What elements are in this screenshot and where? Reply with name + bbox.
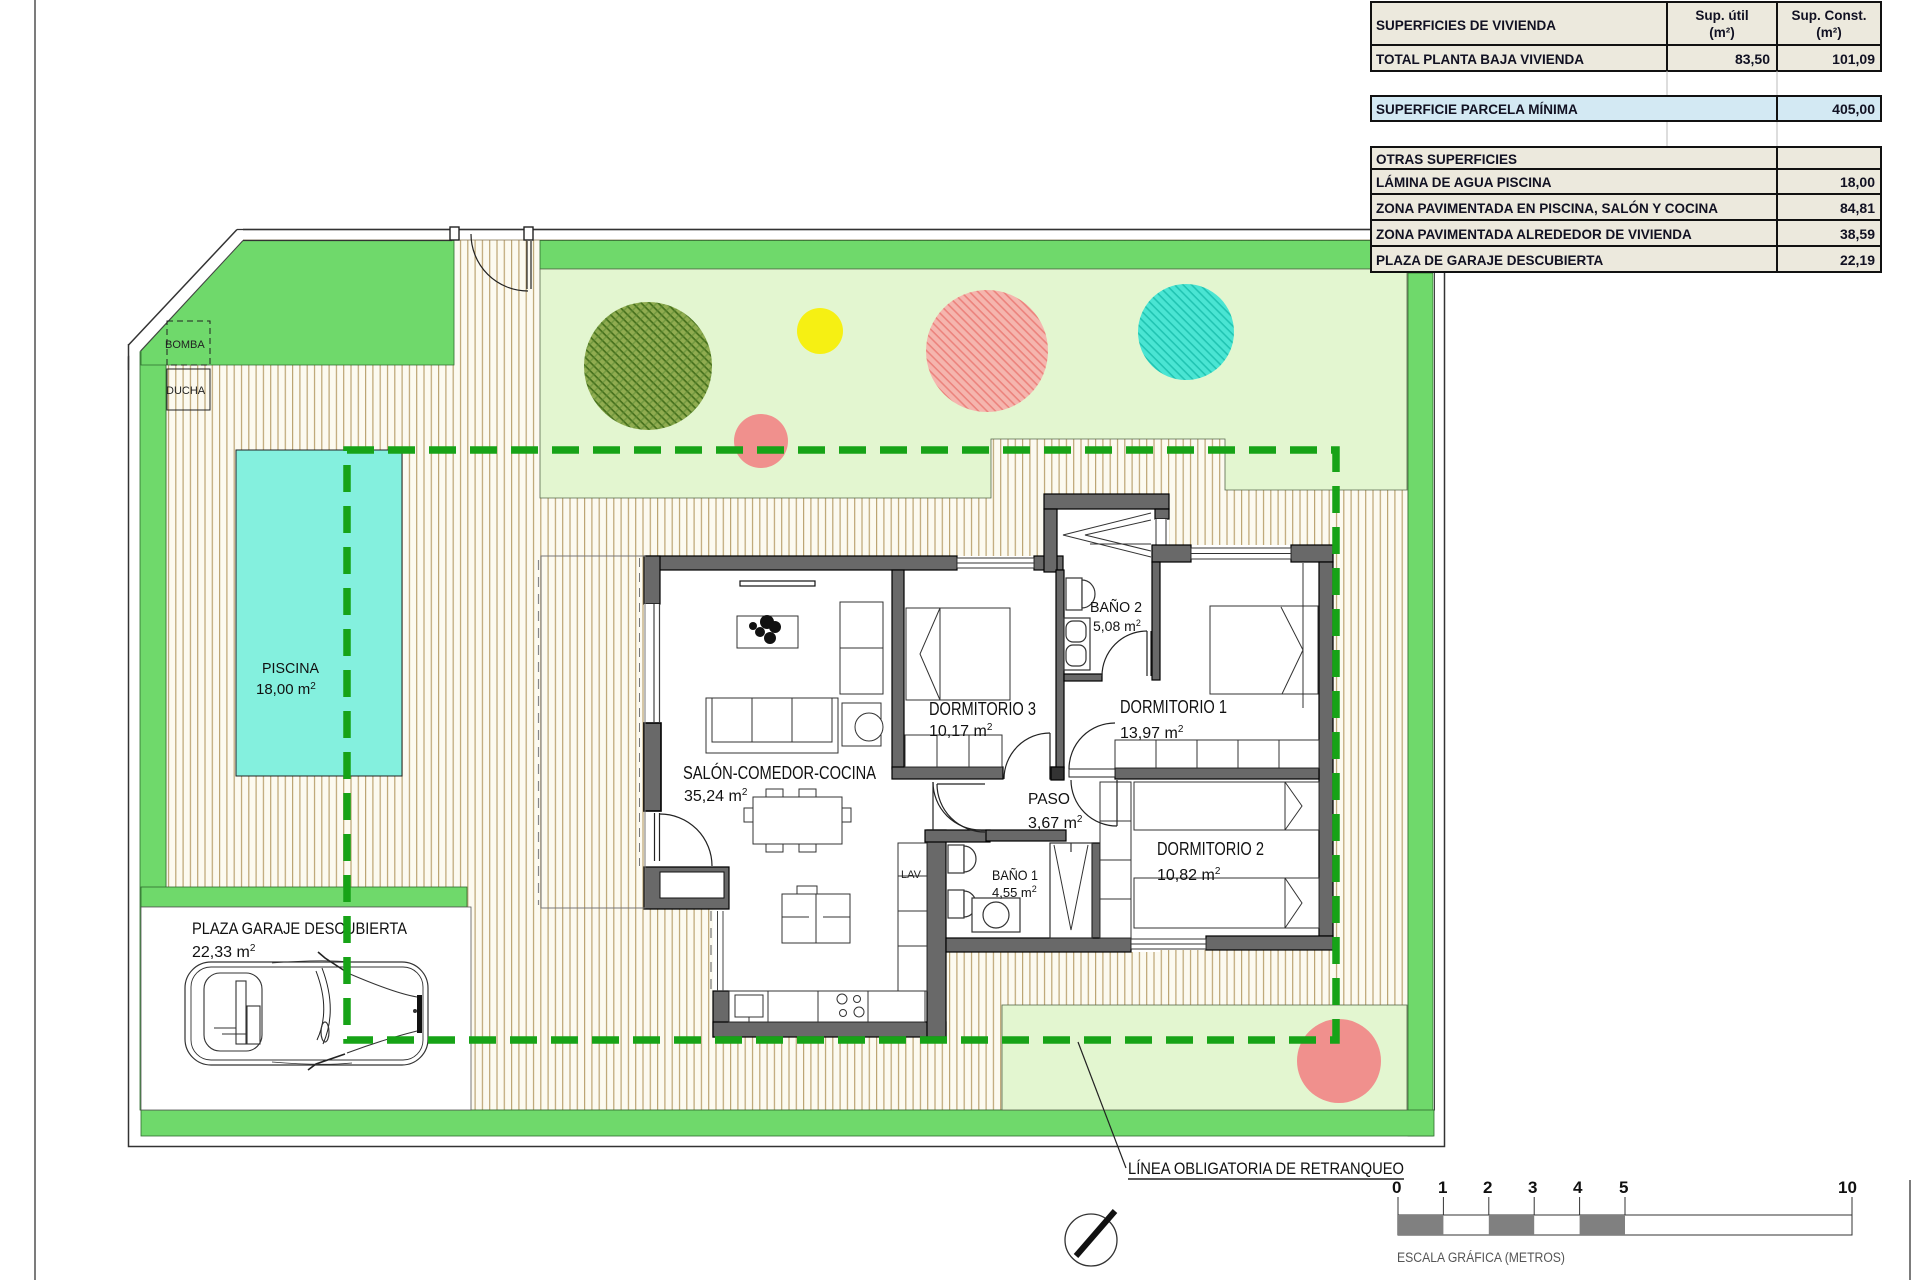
svg-text:LÍNEA OBLIGATORIA DE RETRANQUE: LÍNEA OBLIGATORIA DE RETRANQUEO: [1128, 1159, 1404, 1178]
svg-text:10,82 m2: 10,82 m2: [1157, 866, 1221, 884]
svg-text:5,08 m2: 5,08 m2: [1093, 618, 1141, 634]
svg-text:LAV: LAV: [901, 869, 922, 881]
svg-text:84,81: 84,81: [1840, 200, 1875, 216]
svg-text:TOTAL PLANTA BAJA VIVIENDA: TOTAL PLANTA BAJA VIVIENDA: [1376, 52, 1584, 67]
svg-text:3: 3: [1528, 1178, 1537, 1197]
svg-text:SUPERFICIE PARCELA MÍNIMA: SUPERFICIE PARCELA MÍNIMA: [1376, 102, 1578, 117]
svg-text:83,50: 83,50: [1735, 51, 1770, 67]
svg-text:(m²): (m²): [1816, 25, 1842, 40]
svg-text:SUPERFICIES DE VIVIENDA: SUPERFICIES DE VIVIENDA: [1376, 18, 1556, 33]
svg-text:13,97 m2: 13,97 m2: [1120, 724, 1184, 742]
svg-text:DORMITORIO 3: DORMITORIO 3: [929, 699, 1036, 719]
svg-text:BAÑO 2: BAÑO 2: [1090, 599, 1142, 616]
svg-text:101,09: 101,09: [1832, 51, 1875, 67]
svg-text:0: 0: [1392, 1178, 1401, 1197]
svg-text:PLAZA GARAJE DESCUBIERTA: PLAZA GARAJE DESCUBIERTA: [192, 919, 408, 938]
svg-text:10: 10: [1838, 1178, 1857, 1197]
svg-text:38,59: 38,59: [1840, 226, 1875, 242]
svg-text:Sup. Const.: Sup. Const.: [1792, 8, 1867, 23]
svg-text:SALÓN-COMEDOR-COCINA: SALÓN-COMEDOR-COCINA: [683, 762, 876, 783]
svg-text:BOMBA: BOMBA: [165, 339, 205, 351]
svg-text:22,33 m2: 22,33 m2: [192, 943, 256, 961]
svg-text:10,17 m2: 10,17 m2: [929, 722, 993, 740]
svg-text:DUCHA: DUCHA: [166, 385, 206, 397]
svg-text:PASO: PASO: [1028, 791, 1070, 808]
svg-text:LÁMINA DE AGUA PISCINA: LÁMINA DE AGUA PISCINA: [1376, 175, 1552, 190]
svg-text:2: 2: [1483, 1178, 1492, 1197]
svg-text:BAÑO 1: BAÑO 1: [992, 867, 1038, 883]
svg-text:PISCINA: PISCINA: [262, 660, 319, 677]
svg-text:4: 4: [1573, 1178, 1583, 1197]
svg-text:18,00 m2: 18,00 m2: [256, 681, 316, 698]
svg-text:ZONA PAVIMENTADA ALREDEDOR DE: ZONA PAVIMENTADA ALREDEDOR DE VIVIENDA: [1376, 227, 1692, 242]
svg-text:OTRAS SUPERFICIES: OTRAS SUPERFICIES: [1376, 152, 1517, 167]
svg-text:DORMITORIO 1: DORMITORIO 1: [1120, 697, 1227, 717]
svg-text:3,67 m2: 3,67 m2: [1028, 814, 1083, 832]
svg-text:405,00: 405,00: [1832, 101, 1875, 117]
svg-text:Sup. útil: Sup. útil: [1695, 8, 1748, 23]
svg-text:5: 5: [1619, 1178, 1628, 1197]
svg-text:(m²): (m²): [1709, 25, 1735, 40]
svg-text:35,24 m2: 35,24 m2: [684, 787, 748, 805]
svg-text:1: 1: [1438, 1178, 1447, 1197]
svg-text:ESCALA GRÁFICA (METROS): ESCALA GRÁFICA (METROS): [1397, 1250, 1565, 1265]
svg-text:DORMITORIO 2: DORMITORIO 2: [1157, 839, 1264, 859]
svg-text:22,19: 22,19: [1840, 252, 1875, 268]
svg-text:4,55 m2: 4,55 m2: [992, 884, 1037, 900]
svg-text:PLAZA DE GARAJE DESCUBIERTA: PLAZA DE GARAJE DESCUBIERTA: [1376, 253, 1604, 268]
svg-text:ZONA PAVIMENTADA EN PISCINA, S: ZONA PAVIMENTADA EN PISCINA, SALÓN Y COC…: [1376, 201, 1718, 216]
svg-text:18,00: 18,00: [1840, 174, 1875, 190]
